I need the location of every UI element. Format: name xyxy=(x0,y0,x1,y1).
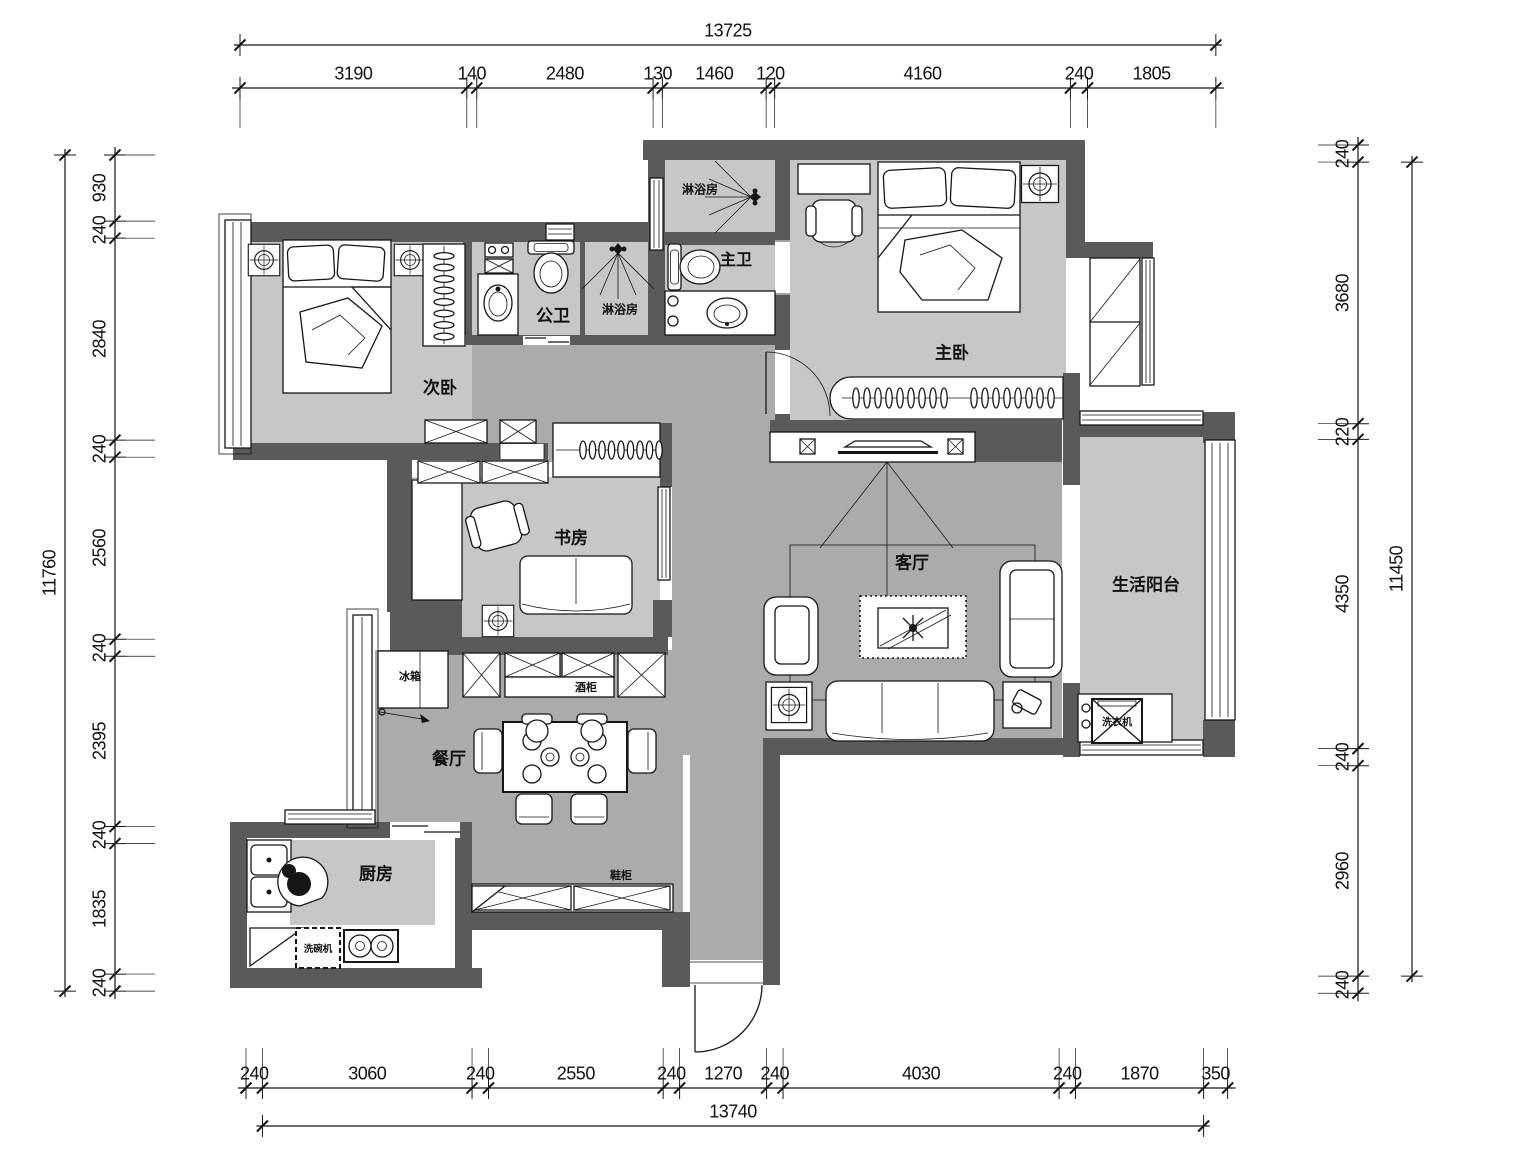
dim-total-label: 13740 xyxy=(709,1102,757,1123)
room-label-public-bath: 公卫 xyxy=(536,302,570,327)
dim-segment-label: 2560 xyxy=(90,529,111,567)
closet-icon-study xyxy=(553,423,662,477)
loveseat-icon-study xyxy=(520,556,632,614)
dining-table-icon xyxy=(503,722,627,792)
dim-segment-label: 240 xyxy=(1333,970,1354,999)
armchair-icon xyxy=(764,597,818,675)
sink-icon-master xyxy=(665,291,775,335)
dim-segment-label: 240 xyxy=(90,821,111,850)
fixture-label-washing-machine: 洗衣机 xyxy=(1102,714,1132,729)
room-label-shower-top: 淋浴房 xyxy=(682,181,718,198)
bay-seat-icon xyxy=(412,480,462,600)
sofa-icon xyxy=(826,681,994,741)
desk-icon xyxy=(798,164,870,194)
dim-segment-label: 120 xyxy=(756,64,785,85)
dim-segment-label: 220 xyxy=(1333,417,1354,446)
fixture-label-wine-cabinet: 酒柜 xyxy=(575,679,597,695)
room-label-second-bedroom: 次卧 xyxy=(423,374,457,399)
ceiling-lamp-icon xyxy=(771,687,806,722)
wardrobe-icon-second xyxy=(423,244,465,346)
dim-segment-label: 1270 xyxy=(704,1064,742,1085)
dim-segment-label: 3190 xyxy=(334,64,372,85)
phone-table-icon xyxy=(1003,682,1051,728)
dim-segment-label: 130 xyxy=(643,64,672,85)
rug-icon xyxy=(860,596,966,658)
fixture-label-fridge: 冰箱 xyxy=(399,668,421,684)
room-label-dining-room: 餐厅 xyxy=(432,745,466,770)
room-label-living-room: 客厅 xyxy=(895,549,929,574)
dim-segment-label: 240 xyxy=(657,1064,686,1085)
room-label-study: 书房 xyxy=(554,524,588,549)
dim-segment-label: 240 xyxy=(761,1064,790,1085)
dim-segment-label: 240 xyxy=(1333,139,1354,168)
dim-segment-label: 1460 xyxy=(695,64,733,85)
ceiling-lamp-icon xyxy=(394,244,425,275)
dim-segment-label: 240 xyxy=(466,1064,495,1085)
stove-icon xyxy=(344,930,398,962)
dim-segment-label: 1805 xyxy=(1133,64,1171,85)
sink-icon-public xyxy=(478,274,518,335)
wine-cabinet-icon xyxy=(463,653,665,697)
dim-segment-label: 240 xyxy=(240,1064,269,1085)
dim-segment-label: 1835 xyxy=(90,890,111,928)
room-label-balcony: 生活阳台 xyxy=(1112,571,1180,596)
fixture-label-shoe-cabinet: 鞋柜 xyxy=(610,867,632,883)
chair-icon-master xyxy=(806,200,862,247)
ceiling-lamp-icon xyxy=(1022,166,1059,203)
ceiling-lamp-icon xyxy=(482,605,513,636)
room-label-master-bedroom: 主卧 xyxy=(935,339,969,364)
dim-segment-label: 2395 xyxy=(90,722,111,760)
dim-segment-label: 930 xyxy=(90,174,111,203)
dim-segment-label: 4030 xyxy=(902,1064,940,1085)
dim-segment-label: 1870 xyxy=(1121,1064,1159,1085)
dim-segment-label: 240 xyxy=(90,968,111,997)
dim-segment-label: 240 xyxy=(90,434,111,463)
floor-plan-drawing xyxy=(0,0,1524,1168)
dim-segment-label: 2960 xyxy=(1333,852,1354,890)
dim-segment-label: 240 xyxy=(90,215,111,244)
person-icon xyxy=(278,857,328,906)
dim-segment-label: 2840 xyxy=(90,320,111,358)
loveseat-icon-living xyxy=(1000,561,1062,677)
ceiling-lamp-icon xyxy=(248,244,279,275)
dim-segment-label: 4160 xyxy=(904,64,942,85)
dim-segment-label: 240 xyxy=(1333,743,1354,772)
dim-segment-label: 2550 xyxy=(557,1064,595,1085)
dim-segment-label: 3060 xyxy=(348,1064,386,1085)
floor-entry xyxy=(690,755,763,968)
dim-total-label: 11450 xyxy=(1387,546,1408,592)
room-label-master-bath: 主卫 xyxy=(720,246,752,270)
dim-segment-label: 350 xyxy=(1201,1064,1230,1085)
dim-segment-label: 240 xyxy=(1065,64,1094,85)
bed-icon-second xyxy=(283,240,391,393)
dim-segment-label: 140 xyxy=(458,64,487,85)
bed-icon-master xyxy=(878,162,1020,312)
fixture-label-dishwasher: 洗碗机 xyxy=(304,941,333,955)
dim-segment-label: 2480 xyxy=(546,64,584,85)
dim-total-label: 11760 xyxy=(40,550,61,596)
bay-window xyxy=(225,220,251,448)
cabinet-column-icon xyxy=(1090,258,1140,386)
room-label-kitchen: 厨房 xyxy=(359,860,393,885)
dim-segment-label: 4350 xyxy=(1333,575,1354,613)
dim-segment-label: 3680 xyxy=(1333,274,1354,312)
dim-total-label: 13725 xyxy=(704,21,752,42)
dim-segment-label: 240 xyxy=(1053,1064,1082,1085)
dim-segment-label: 240 xyxy=(90,633,111,662)
floor-plan-page: 淋浴房 主卫 公卫 淋浴房 次卧 主卧 书房 客厅 生活阳台 餐厅 厨房 冰箱 … xyxy=(0,0,1524,1168)
room-label-shower-mid: 淋浴房 xyxy=(602,301,638,318)
